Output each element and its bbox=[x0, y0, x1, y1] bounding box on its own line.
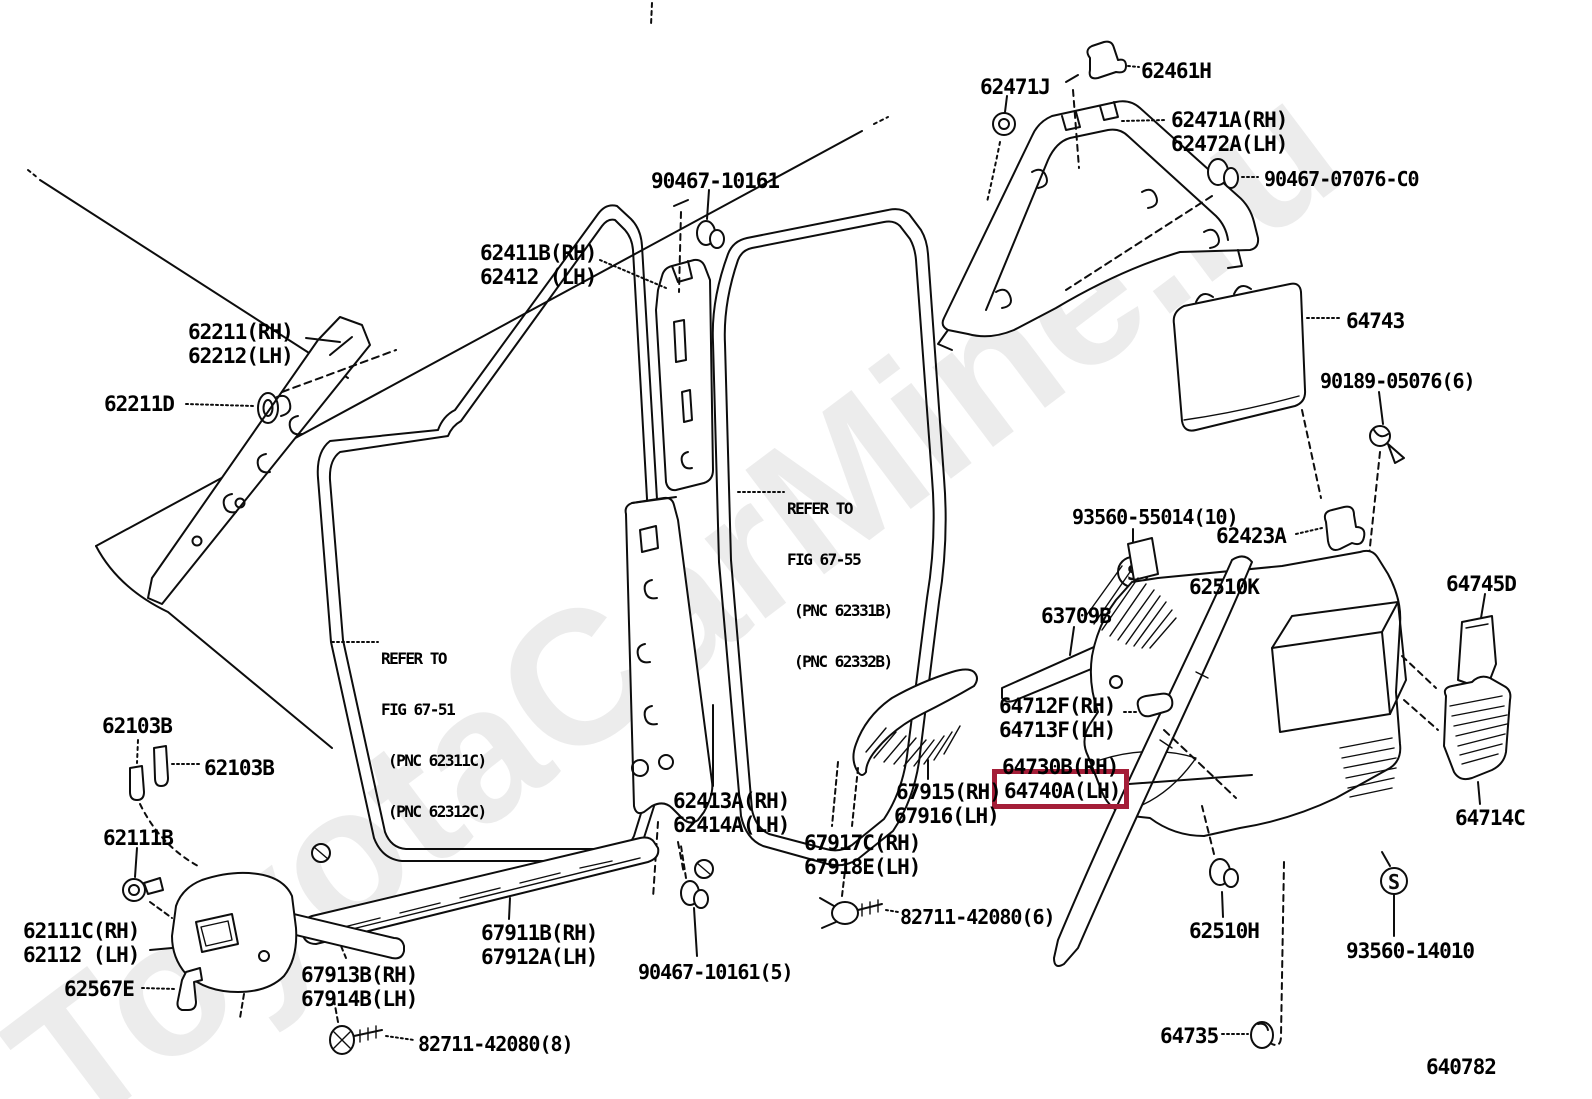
front-door-opening-seal bbox=[312, 205, 668, 862]
part-label-64743: 64743 bbox=[1346, 309, 1404, 333]
figure-number: 640782 bbox=[1426, 1055, 1496, 1079]
part-label-64735: 64735 bbox=[1160, 1024, 1218, 1048]
part-label-64714c: 64714C bbox=[1455, 806, 1525, 830]
pin-64735-drawing bbox=[1222, 862, 1284, 1048]
refer-note-line: (PNC 62332B) bbox=[794, 653, 892, 670]
part-label-63709b: 63709B bbox=[1041, 604, 1111, 628]
s-symbol-glyph: S bbox=[1388, 870, 1400, 894]
pad-64745d-flap-64714c bbox=[1444, 594, 1510, 804]
part-label-93560-55014-10: 93560-55014(10) bbox=[1072, 505, 1238, 529]
part-label-62423a: 62423A bbox=[1216, 524, 1286, 548]
part-label-67916-lh: 67916(LH) bbox=[894, 804, 999, 828]
part-label-62510h: 62510H bbox=[1189, 919, 1259, 943]
part-label-93560-14010: 93560-14010 bbox=[1346, 939, 1474, 963]
b-pillar-upper-garnish bbox=[656, 260, 713, 490]
part-label-67912a-lh: 67912A(LH) bbox=[481, 945, 597, 969]
part-label-62211-rh: 62211(RH) bbox=[188, 320, 293, 344]
refer-note-line: FIG 67-55 bbox=[787, 551, 892, 568]
part-label-62412-lh: 62412 (LH) bbox=[480, 265, 596, 289]
part-label-62510k: 62510K bbox=[1189, 575, 1259, 599]
part-label-64713f-lh: 64713F(LH) bbox=[999, 718, 1115, 742]
part-label-67914b-lh: 67914B(LH) bbox=[301, 987, 417, 1011]
refer-note-fig-67-55: REFER TO FIG 67-55 (PNC 62331B) (PNC 623… bbox=[787, 466, 892, 704]
part-label-62471a-rh: 62471A(RH) bbox=[1171, 108, 1287, 132]
parts-diagram-canvas: ToyotaCarMine.ru bbox=[0, 0, 1592, 1099]
refer-note-line: (PNC 62311C) bbox=[388, 752, 486, 769]
panel-64743-drawing bbox=[1174, 284, 1340, 431]
part-label-90467-10161: 90467-10161 bbox=[651, 169, 779, 193]
part-label-64740a-lh-highlighted: 64740A(LH) bbox=[1004, 779, 1120, 803]
part-label-62212-lh: 62212(LH) bbox=[188, 344, 293, 368]
part-label-62111b: 62111B bbox=[103, 826, 173, 850]
part-label-62461h: 62461H bbox=[1141, 59, 1211, 83]
part-label-62413a-rh: 62413A(RH) bbox=[673, 789, 789, 813]
part-label-90467-10161-5: 90467-10161(5) bbox=[638, 960, 793, 984]
part-label-64730b-rh: 64730B(RH) bbox=[1002, 755, 1118, 779]
part-label-64745d: 64745D bbox=[1446, 572, 1516, 596]
part-label-67917c-rh: 67917C(RH) bbox=[804, 831, 920, 855]
part-label-82711-42080-6: 82711-42080(6) bbox=[900, 905, 1055, 929]
part-label-62411b-rh: 62411B(RH) bbox=[480, 241, 596, 265]
cowl-side-trim-group bbox=[123, 740, 296, 1018]
refer-note-fig-67-51: REFER TO FIG 67-51 (PNC 62311C) (PNC 623… bbox=[381, 616, 486, 854]
part-label-90189-05076-6: 90189-05076(6) bbox=[1320, 369, 1475, 393]
refer-note-line: FIG 67-51 bbox=[381, 701, 486, 718]
refer-note-line: (PNC 62312C) bbox=[388, 803, 486, 820]
part-label-62414a-lh: 62414A(LH) bbox=[673, 813, 789, 837]
part-label-82711-42080-8: 82711-42080(8) bbox=[418, 1032, 573, 1056]
part-label-62472a-lh: 62472A(LH) bbox=[1171, 132, 1287, 156]
part-label-67918e-lh: 67918E(LH) bbox=[804, 855, 920, 879]
part-label-67913b-rh: 67913B(RH) bbox=[301, 963, 417, 987]
refer-note-line: REFER TO bbox=[787, 500, 892, 517]
refer-note-line: (PNC 62331B) bbox=[794, 602, 892, 619]
part-label-62567e: 62567E bbox=[64, 977, 134, 1001]
part-label-67915-rh: 67915(RH) bbox=[896, 780, 1001, 804]
part-label-67911b-rh: 67911B(RH) bbox=[481, 921, 597, 945]
part-label-64712f-rh: 64712F(RH) bbox=[999, 694, 1115, 718]
part-label-62211d: 62211D bbox=[104, 392, 174, 416]
refer-note-line: REFER TO bbox=[381, 650, 486, 667]
part-label-62103b-b: 62103B bbox=[204, 756, 274, 780]
part-label-62111c-rh: 62111C(RH) bbox=[23, 919, 139, 943]
part-label-62471j: 62471J bbox=[980, 75, 1050, 99]
part-label-90467-07076-c0: 90467-07076-C0 bbox=[1264, 167, 1419, 191]
part-label-62112-lh: 62112 (LH) bbox=[23, 943, 139, 967]
screw-symbol-93560-14010: S bbox=[1381, 852, 1407, 936]
part-label-62103b-a: 62103B bbox=[102, 714, 172, 738]
